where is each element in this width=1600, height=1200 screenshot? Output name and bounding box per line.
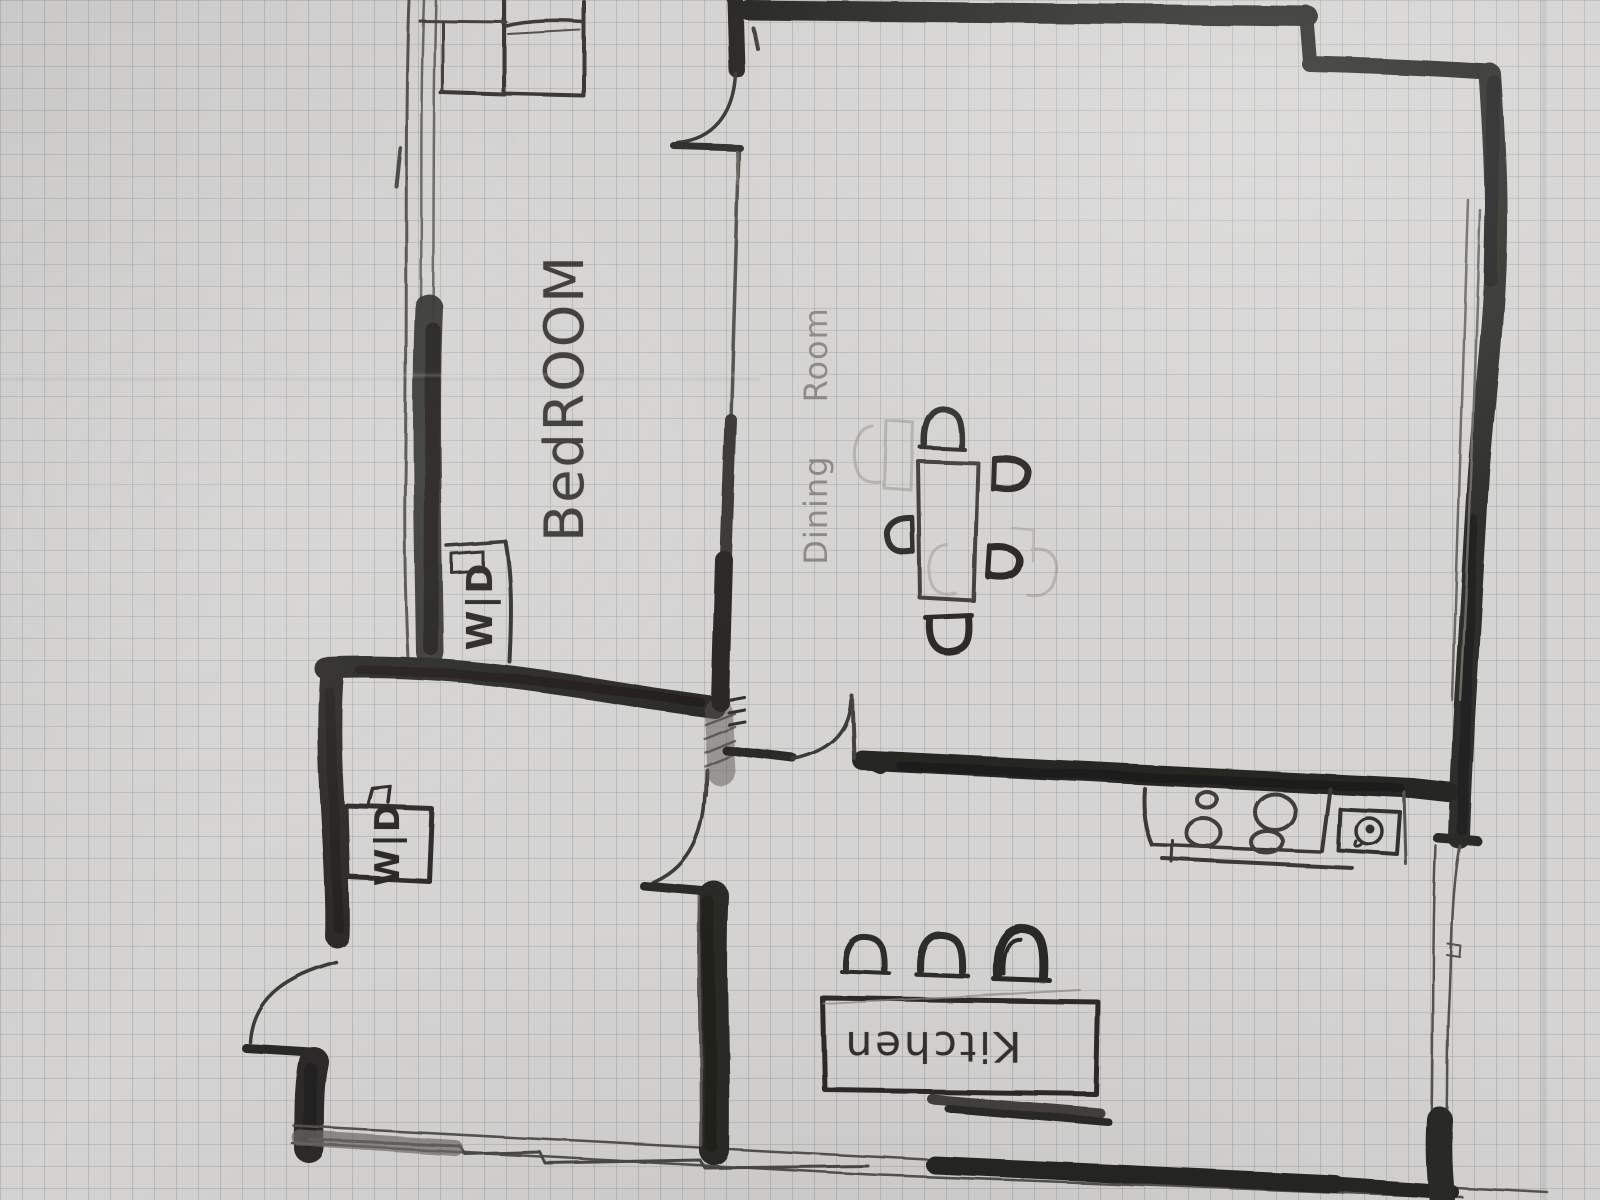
entry-door-swing-icon — [246, 962, 336, 1148]
bar-stool-icon — [994, 929, 1050, 981]
floorplan-drawing — [0, 0, 1600, 1200]
kitchen-divider-wall — [699, 896, 714, 1150]
right-wall — [1438, 74, 1496, 841]
dining-chair-icon — [920, 409, 964, 449]
bar-stool-icon — [841, 937, 889, 973]
bar-stool-icon — [916, 935, 968, 976]
nightstand-icon — [420, 21, 506, 95]
bottom-wall-window — [292, 1126, 1548, 1197]
stove-icon — [1143, 788, 1352, 868]
lower-room-left-wall — [329, 672, 339, 936]
hall-door-swing-icon — [726, 696, 854, 759]
kitchen-island-icon — [823, 990, 1108, 1122]
right-wall-window — [1432, 846, 1461, 1198]
top-wall — [748, 10, 1488, 72]
bedroom-window-wall — [396, 0, 436, 658]
lower-room-door-swing-icon — [644, 770, 714, 892]
erased-chair-icon — [854, 420, 1056, 596]
bedroom-door-swing-icon — [674, 0, 757, 184]
dining-chair-icon — [926, 616, 972, 652]
dining-chair-icon — [993, 458, 1028, 489]
dining-chair-icon — [988, 546, 1019, 577]
dining-chair-icon — [887, 517, 913, 552]
sink-icon — [1338, 792, 1406, 864]
washer-dryer-box-icon — [346, 787, 432, 881]
bedroom-bottom-wall — [325, 667, 714, 707]
bed-icon — [504, 0, 584, 96]
bedroom-dining-divider-wall — [720, 150, 739, 702]
closet-icon — [447, 542, 511, 662]
burner-icon — [1187, 792, 1295, 853]
dining-table-icon — [918, 461, 978, 601]
kitchen-top-wall — [862, 758, 1448, 792]
graph-paper: BedROOM Dining Room Kitchen W|D W|D — [0, 0, 1600, 1200]
